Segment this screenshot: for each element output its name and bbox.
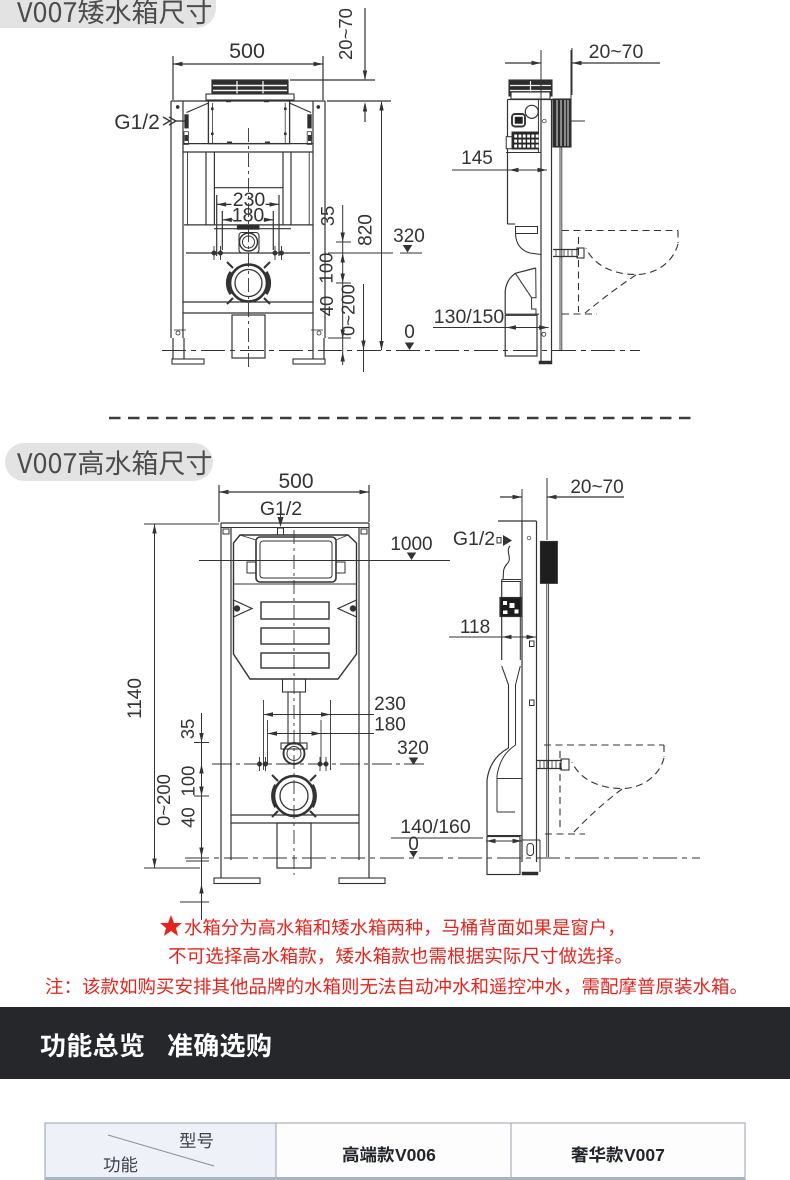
svg-text:320: 320 <box>393 226 425 247</box>
svg-text:V007: V007 <box>624 1145 665 1165</box>
svg-text:G1/2: G1/2 <box>453 528 495 550</box>
svg-text:180: 180 <box>374 715 406 736</box>
svg-text:35: 35 <box>177 719 198 740</box>
svg-text:40: 40 <box>178 807 199 828</box>
svg-text:40: 40 <box>316 296 337 317</box>
svg-text:145: 145 <box>461 148 493 169</box>
svg-text:0~200: 0~200 <box>338 284 359 336</box>
svg-text:130/150: 130/150 <box>434 306 505 328</box>
svg-text:20~70: 20~70 <box>589 41 644 63</box>
svg-text:100: 100 <box>316 253 337 284</box>
svg-text:320: 320 <box>397 738 429 759</box>
svg-text:20~70: 20~70 <box>570 477 623 498</box>
svg-text:140/160: 140/160 <box>400 816 471 838</box>
svg-text:500: 500 <box>278 470 313 493</box>
svg-text:100: 100 <box>178 766 199 797</box>
svg-text:G1/2: G1/2 <box>114 111 160 134</box>
svg-text:35: 35 <box>317 206 338 227</box>
svg-text:1140: 1140 <box>125 678 146 719</box>
svg-text:20~70: 20~70 <box>335 8 356 60</box>
svg-text:230: 230 <box>374 694 406 715</box>
svg-text:820: 820 <box>356 214 377 246</box>
svg-text:500: 500 <box>229 39 265 63</box>
svg-text:V006: V006 <box>395 1145 436 1165</box>
svg-text:1000: 1000 <box>390 534 432 555</box>
svg-text:0: 0 <box>404 322 415 343</box>
svg-text:118: 118 <box>460 617 490 638</box>
svg-text:0~200: 0~200 <box>153 774 174 826</box>
